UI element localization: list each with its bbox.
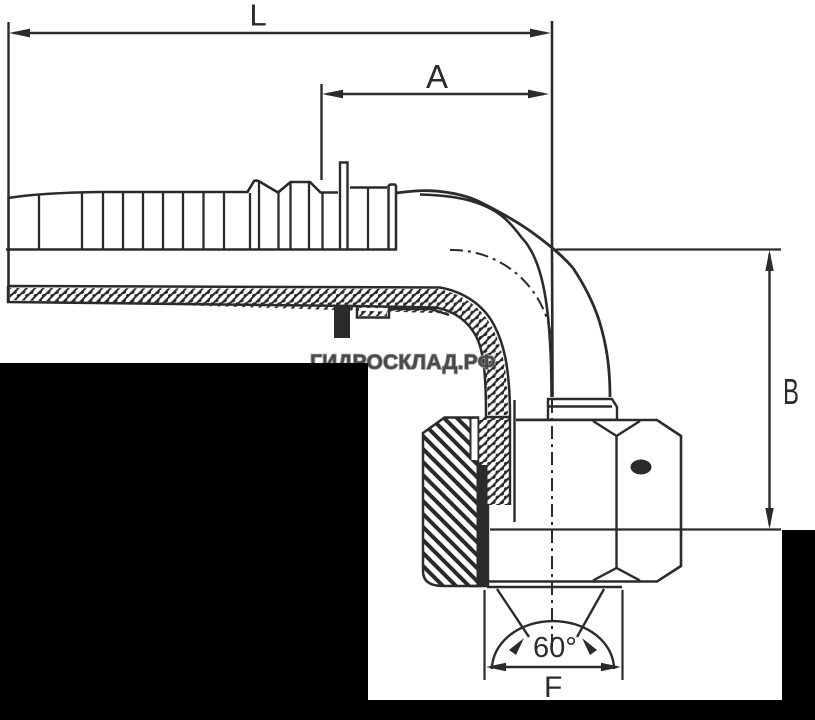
svg-text:60°: 60° <box>533 632 577 664</box>
svg-text:B: B <box>783 371 799 412</box>
svg-text:A: A <box>426 58 448 95</box>
svg-text:F: F <box>544 671 562 704</box>
svg-text:L: L <box>250 0 267 33</box>
